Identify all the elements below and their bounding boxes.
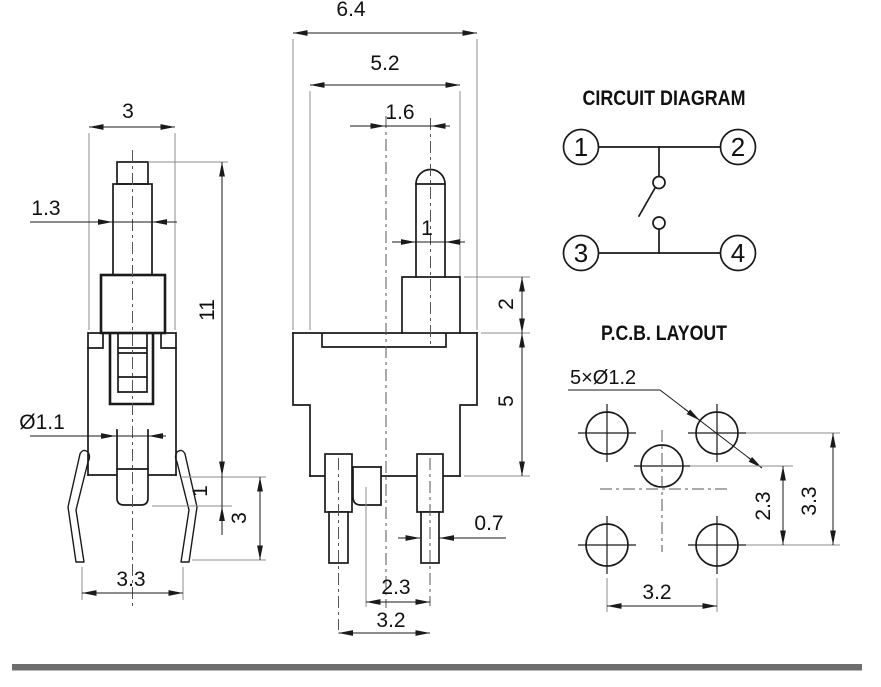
switch-datasheet-drawing: 3 1.3 11 Ø1.1 1 3 3.3 [0, 0, 881, 687]
dim-front-shaft-width: 1.3 [31, 197, 60, 220]
dim-pcb-column-spacing: 3.2 [642, 581, 671, 604]
dim-front-feet-span: 3.3 [116, 568, 145, 591]
dim-front-total-height: 11 [196, 299, 219, 321]
pcb-leader [568, 390, 762, 468]
terminal-1-label: 1 [574, 132, 588, 162]
front-view-dim-labels: 3 1.3 11 Ø1.1 1 3 3.3 [19, 100, 251, 591]
switch-contact-top [653, 177, 665, 189]
pcb-layout: P.C.B. LAYOUT 5×Ø1.2 [568, 322, 840, 612]
dim-side-body-height: 5 [495, 395, 518, 407]
footer-divider-bar [12, 664, 862, 671]
pcb-holes-note: 5×Ø1.2 [570, 367, 636, 389]
front-view-dimensions [30, 127, 260, 593]
side-view: 6.4 5.2 1.6 1 2 5 0.7 2.3 3.2 [293, 0, 530, 633]
switch-lever [639, 188, 655, 216]
side-view-outline [293, 170, 477, 564]
circuit-wiring [599, 147, 721, 253]
side-left-flange [293, 333, 310, 476]
dim-pcb-row-spacing: 3.3 [798, 486, 821, 515]
front-view: 3 1.3 11 Ø1.1 1 3 3.3 [19, 100, 266, 608]
dim-pcb-center-to-row: 2.3 [752, 491, 775, 520]
terminal-2-label: 2 [731, 132, 745, 162]
dim-front-leg-height: 3 [228, 512, 251, 524]
dim-front-stem-diameter: Ø1.1 [19, 411, 65, 434]
switch-contact-bottom [653, 217, 665, 229]
dim-side-neck-height: 2 [495, 298, 518, 310]
pcb-layout-title: P.C.B. LAYOUT [601, 322, 727, 345]
dim-side-stem-to-pin: 2.3 [381, 576, 410, 599]
side-stem [353, 467, 381, 505]
side-right-flange [460, 333, 477, 476]
circuit-diagram-title: CIRCUIT DIAGRAM [583, 87, 746, 110]
front-left-leg [68, 450, 90, 562]
pcb-centerlines [600, 430, 727, 552]
dim-side-plunger-width: 1 [421, 217, 433, 240]
dim-front-stem-length: 1 [189, 485, 212, 497]
dim-side-pin-pitch: 3.2 [376, 609, 405, 632]
dim-side-pin-width: 0.7 [474, 512, 503, 535]
dim-side-body-width: 5.2 [370, 52, 399, 75]
terminal-3-label: 3 [574, 238, 588, 268]
dim-front-top-width: 3 [122, 100, 134, 123]
circuit-diagram: CIRCUIT DIAGRAM 1 2 3 4 [564, 87, 756, 271]
technical-drawing-canvas: 3 1.3 11 Ø1.1 1 3 3.3 [0, 0, 881, 687]
terminal-4-label: 4 [731, 238, 745, 268]
pcb-dimensions [607, 433, 833, 606]
dim-side-flange-width: 6.4 [336, 0, 366, 21]
dim-side-plunger-offset: 1.6 [385, 101, 414, 124]
